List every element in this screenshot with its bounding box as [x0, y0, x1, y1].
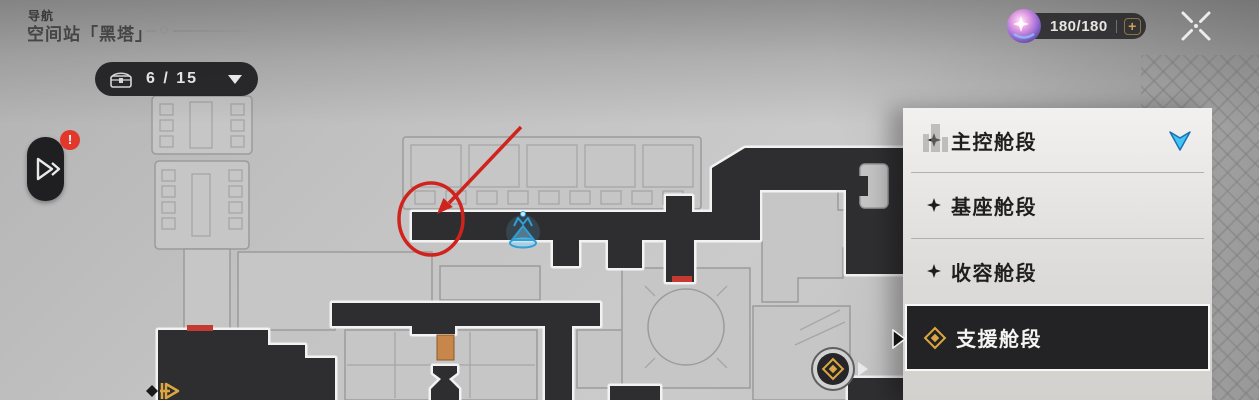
diamond-icon [927, 198, 941, 212]
door-marker [437, 335, 454, 360]
stamina-counter: 180/180 + [1006, 9, 1042, 43]
sidebar-item-storage-zone[interactable]: 收容舱段 [903, 239, 1212, 303]
diamond-icon [927, 264, 941, 278]
stamina-divider [1116, 20, 1117, 33]
chest-count: 6 / 15 [146, 70, 198, 88]
sidebar-item-label: 收容舱段 [951, 257, 1037, 286]
map-screen: 导航 空间站「黑塔」 6 / 15 180/180 + [0, 0, 1259, 400]
title-decor-line [173, 30, 247, 32]
sidebar-item-main-control[interactable]: 主控舱段 [903, 108, 1212, 172]
gold-ornate-icon [923, 326, 947, 350]
stamina-orb-icon [1006, 8, 1042, 44]
sidebar-item-label: 基座舱段 [951, 191, 1037, 220]
sidebar-item-base-zone[interactable]: 基座舱段 [903, 173, 1212, 237]
notification-badge: ! [60, 130, 80, 150]
selection-cursor-icon [1168, 130, 1192, 152]
location-title: 空间站「黑塔」 [27, 20, 153, 45]
play-icon [32, 156, 64, 182]
stamina-value: 180/180 [1050, 18, 1108, 35]
sidebar-item-label: 支援舱段 [956, 323, 1042, 352]
add-stamina-button[interactable]: + [1124, 18, 1141, 35]
sidebar-item-label: 主控舱段 [951, 126, 1037, 155]
red-tick-marker [672, 276, 692, 282]
chevron-down-icon [228, 75, 242, 84]
chest-icon [110, 70, 132, 88]
expand-sidebar-button[interactable]: ! [27, 137, 64, 201]
title-decor-dash [146, 30, 156, 32]
sidebar-item-supply-zone[interactable]: 支援舱段 [905, 304, 1210, 371]
chest-counter-dropdown[interactable]: 6 / 15 [95, 62, 258, 96]
red-tick-marker [187, 325, 213, 331]
close-button[interactable] [1178, 8, 1214, 44]
selected-pointer-icon [891, 329, 907, 349]
medallion-caret-icon [858, 362, 868, 376]
title-decor-circle [160, 26, 168, 34]
region-panel: 主控舱段 基座舱段 收容舱段 支援舱段 [903, 108, 1212, 400]
building-icon [923, 122, 949, 154]
